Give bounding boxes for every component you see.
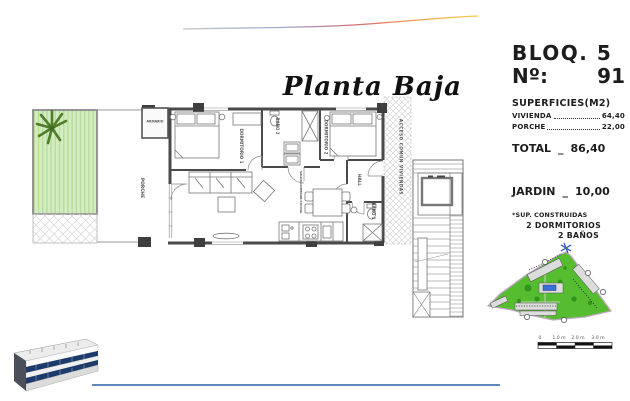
- unit-number-label: Nº:: [512, 65, 548, 87]
- room-label-bedroom1: DORMITORIO 1: [239, 128, 244, 163]
- surface-value: 64,40: [602, 112, 625, 120]
- room-label-living: SALON/COMEDOR/COCINA: [299, 171, 303, 214]
- garden-separator: _: [563, 185, 569, 198]
- common-access-strip: [384, 97, 411, 244]
- scale-label-1: 1.0 m: [552, 335, 566, 341]
- brochure-page: ARMARIO PORCHE DORMITORIO 1 BAÑO 2 DORMI…: [0, 0, 630, 401]
- site-plan: [488, 243, 611, 323]
- scale-label-2: 2.0 m: [571, 335, 585, 341]
- surface-row-porche: PORCHE 22,00: [512, 123, 625, 131]
- total-row: TOTAL _ 86,40: [512, 142, 625, 155]
- page-title: Planta Baja: [232, 72, 462, 102]
- porch-outline: [97, 110, 142, 242]
- total-separator: _: [558, 142, 564, 155]
- room-label-porch: PORCHE: [139, 178, 145, 198]
- room-label-access: ACCESO COMUN VIVIENDAS: [399, 119, 404, 195]
- scale-label-3: 3.0 m: [591, 335, 605, 341]
- bathrooms-count: 2 BAÑOS: [512, 231, 625, 240]
- total-value: 86,40: [571, 142, 606, 155]
- site-pool: [543, 285, 556, 291]
- stair-railing: [418, 238, 427, 290]
- terrace-lattice: [33, 214, 97, 243]
- garden-label: JARDIN: [512, 185, 556, 198]
- surface-label: PORCHE: [512, 123, 545, 131]
- room-label-hall: HALL: [357, 174, 362, 186]
- stairwell: [413, 160, 463, 317]
- bedrooms-count: 2 DORMITORIOS: [512, 221, 625, 230]
- total-label: TOTAL: [512, 142, 551, 155]
- building-render: [14, 339, 98, 391]
- dot-leader: [547, 129, 599, 130]
- swoosh-decoration: [183, 16, 478, 29]
- room-label-closet: ARMARIO: [147, 120, 164, 124]
- built-surfaces-note: *SUP. CONSTRUIDAS: [512, 212, 625, 219]
- garden-value: 10,00: [575, 185, 610, 198]
- surface-value: 22,00: [602, 123, 625, 131]
- garden-area: [33, 110, 97, 214]
- scale-label-0: 0: [539, 335, 542, 341]
- room-label-bath1: BAÑO 1: [371, 202, 376, 219]
- garden-row: JARDIN _ 10,00: [512, 185, 625, 198]
- surfaces-header: SUPERFICIES(M2): [512, 98, 625, 109]
- surface-row-vivienda: VIVIENDA 64,40: [512, 112, 625, 120]
- room-label-bath2: BAÑO 2: [275, 117, 280, 134]
- scale-bar: 0 1.0 m 2.0 m 3.0 m: [538, 335, 612, 349]
- unit-number-value: 91: [597, 65, 625, 87]
- block-label: BLOQ. 5: [512, 42, 625, 64]
- surface-label: VIVIENDA: [512, 112, 552, 120]
- room-label-bedroom2: DORMITORIO 2: [324, 119, 329, 154]
- unit-number-row: Nº: 91: [512, 65, 625, 87]
- info-panel: BLOQ. 5 Nº: 91 SUPERFICIES(M2) VIVIENDA …: [512, 42, 625, 240]
- dot-leader: [554, 118, 600, 119]
